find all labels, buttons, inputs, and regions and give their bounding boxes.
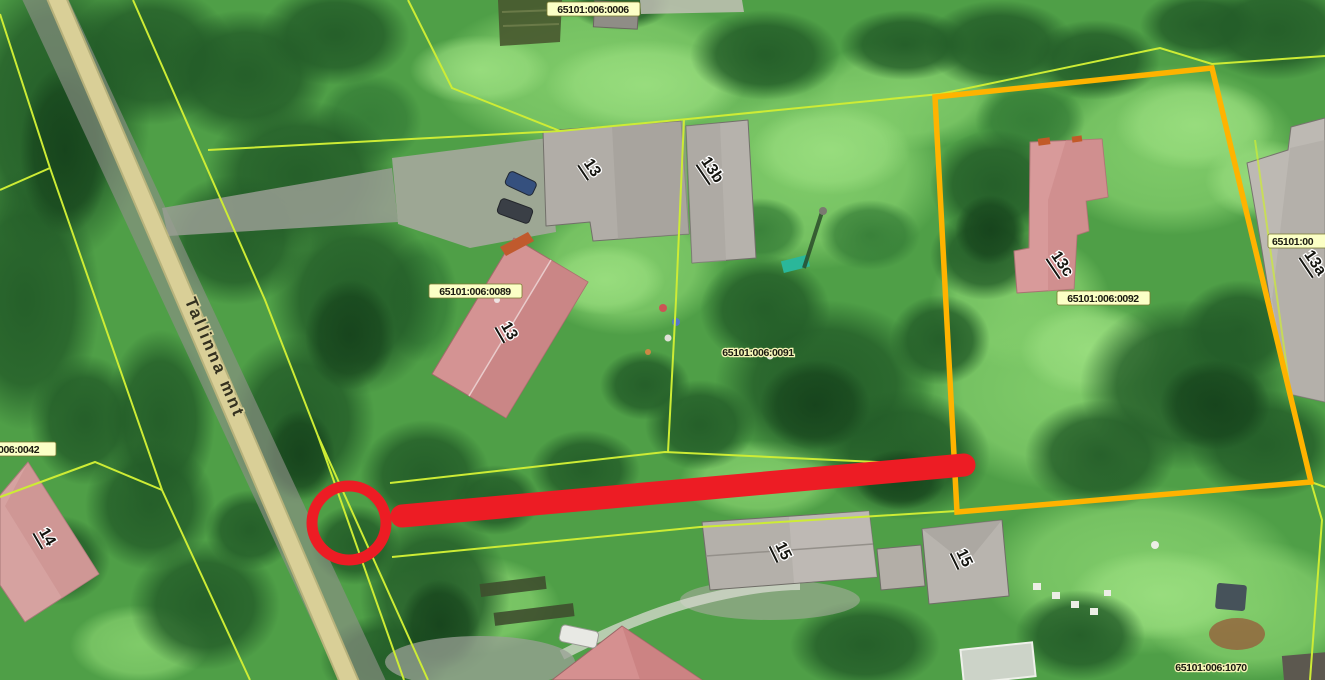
cad-label-left-edge: 006:0042: [0, 442, 56, 456]
parcel-code: 65101:006:0089: [439, 286, 511, 298]
cad-label-0092: 65101:006:0092: [1057, 291, 1150, 305]
cad-label-1070: 65101:006:1070: [1175, 662, 1247, 674]
parcel-code: 65101:006:0006: [557, 4, 629, 16]
parcel-code: 006:0042: [0, 444, 40, 456]
greenhouse: [960, 642, 1035, 680]
parcel-code: 65101:00: [1272, 236, 1314, 248]
bare-soil: [1209, 618, 1265, 650]
parcel-code: 65101:006:1070: [1175, 662, 1247, 674]
shed-15: [877, 545, 925, 590]
cad-label-right-edge: 65101:00: [1268, 234, 1325, 248]
cad-label-0091: 65101:006:0091: [722, 347, 794, 359]
cadastral-map[interactable]: Tallinna mnt 13 13b 13 13c 13a 15: [0, 0, 1325, 680]
pool: [1215, 583, 1247, 612]
cad-label-0006: 65101:006:0006: [547, 2, 640, 16]
cad-label-0089: 65101:006:0089: [429, 284, 522, 298]
parcel-code: 65101:006:0091: [722, 347, 794, 359]
dark-shed: [1282, 652, 1325, 680]
parcel-code: 65101:006:0092: [1067, 293, 1139, 305]
map-viewport[interactable]: Tallinna mnt 13 13b 13 13c 13a 15: [0, 0, 1325, 680]
